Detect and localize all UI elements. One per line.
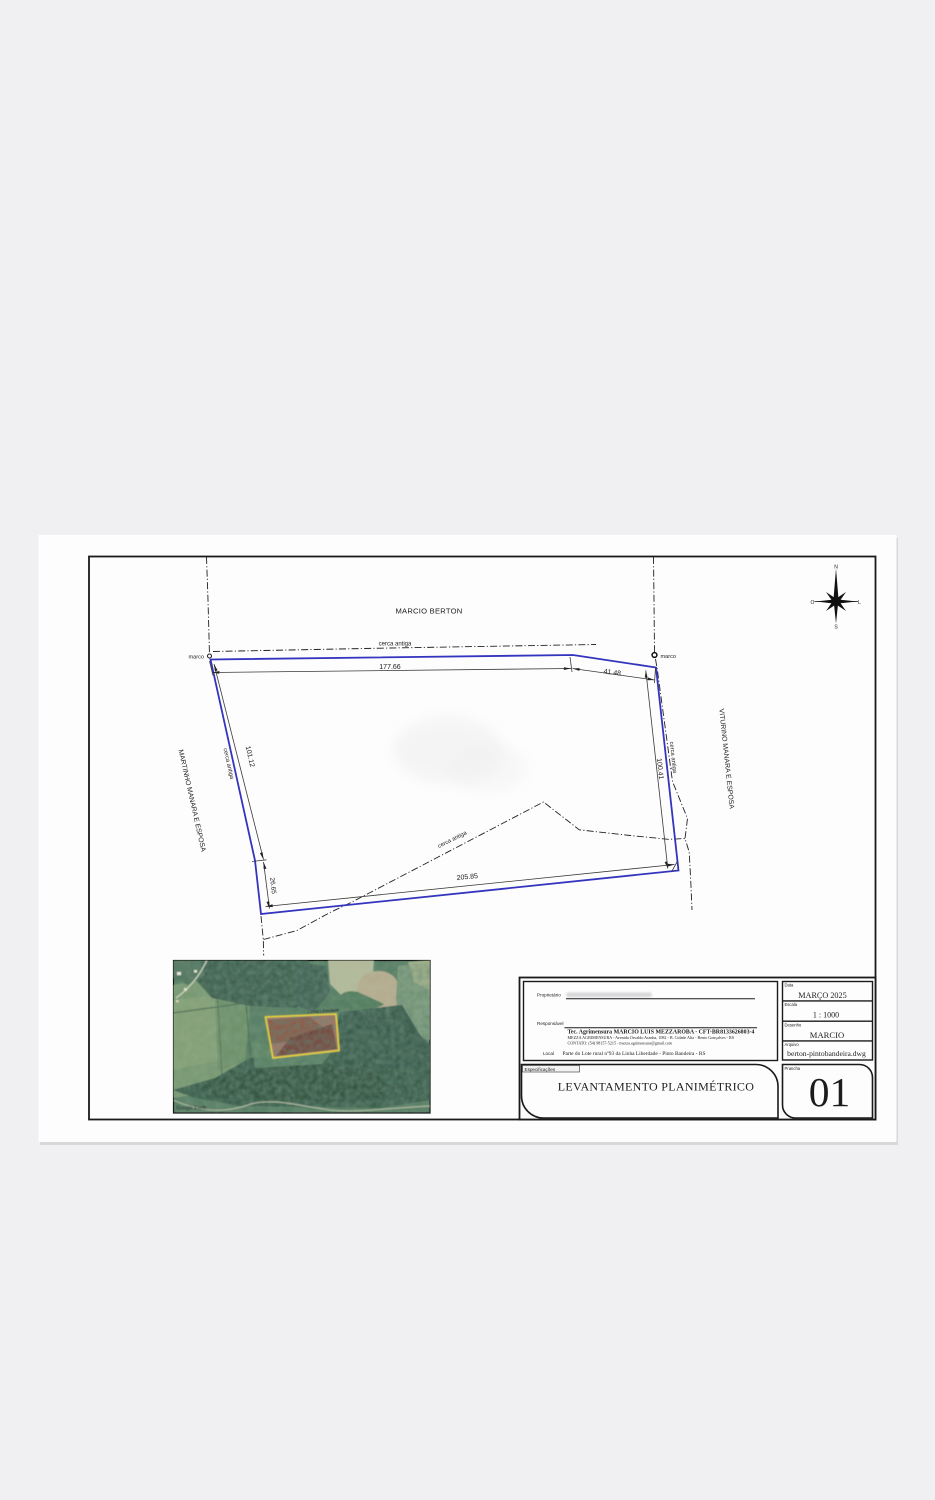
- svg-text:Especificações: Especificações: [525, 1067, 556, 1072]
- svg-text:Responsável: Responsável: [537, 1021, 564, 1026]
- svg-text:cerca antiga: cerca antiga: [379, 642, 412, 648]
- svg-text:MARÇO 2025: MARÇO 2025: [798, 991, 846, 1000]
- svg-text:Local: Local: [543, 1051, 554, 1056]
- svg-text:01: 01: [809, 1069, 851, 1115]
- svg-text:berton-pintobandeira.dwg: berton-pintobandeira.dwg: [787, 1049, 866, 1058]
- svg-text:MARCIO BERTON: MARCIO BERTON: [395, 607, 462, 616]
- svg-text:Parte do Lote rural nº93 da Li: Parte do Lote rural nº93 da Linha Liberd…: [563, 1051, 706, 1057]
- svg-text:Proprietário: Proprietário: [537, 993, 561, 998]
- svg-text:Data: Data: [785, 983, 795, 988]
- svg-text:CONTATO: (54) 98157-5215 - mez: CONTATO: (54) 98157-5215 - mezza.agrimen…: [568, 1041, 674, 1046]
- svg-text:177.66: 177.66: [379, 664, 401, 671]
- svg-text:Arquivo: Arquivo: [785, 1042, 800, 1047]
- svg-text:marco: marco: [188, 655, 204, 661]
- svg-text:Prancha: Prancha: [785, 1066, 801, 1071]
- svg-text:Google Earth: Google Earth: [176, 1106, 207, 1112]
- svg-text:Escala: Escala: [785, 1002, 798, 1007]
- svg-text:L: L: [858, 600, 861, 606]
- svg-text:O: O: [811, 600, 815, 606]
- svg-text:N: N: [834, 565, 838, 571]
- svg-text:LEVANTAMENTO PLANIMÉTRICO: LEVANTAMENTO PLANIMÉTRICO: [558, 1080, 754, 1094]
- svg-text:Desenho: Desenho: [785, 1022, 802, 1027]
- svg-text:1 : 1000: 1 : 1000: [813, 1011, 839, 1020]
- svg-text:MARCIO: MARCIO: [810, 1030, 844, 1040]
- svg-text:marco: marco: [661, 654, 677, 660]
